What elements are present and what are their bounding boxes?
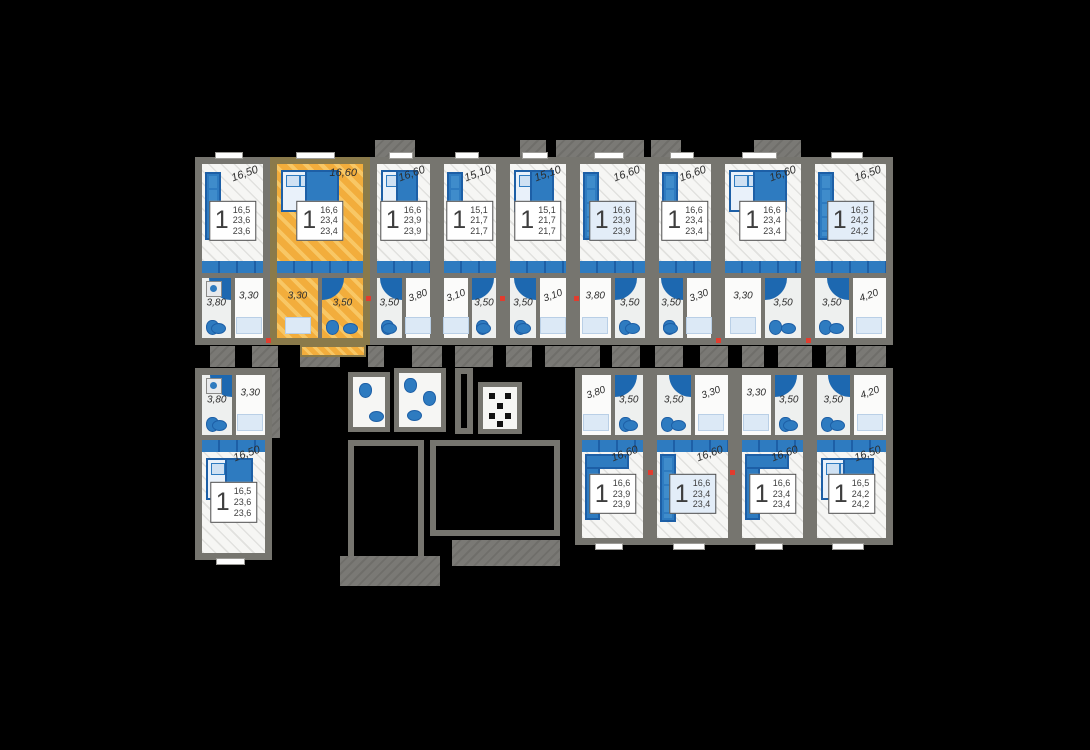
unit-area-overall: 23,9 bbox=[404, 226, 422, 237]
unit-area-overall: 23,4 bbox=[763, 226, 781, 237]
unit-area-overall: 21,7 bbox=[470, 226, 488, 237]
sink-icon bbox=[407, 410, 422, 421]
window bbox=[831, 152, 864, 159]
corridor-wall-segment bbox=[700, 346, 728, 367]
living-room: 16,60116,623,423,4 bbox=[659, 164, 711, 273]
entrance-mat bbox=[285, 317, 311, 334]
bathroom: 3,50 bbox=[615, 375, 644, 435]
living-room: 16,60116,623,423,4 bbox=[657, 440, 728, 538]
unit-info-card: 116,524,224,2 bbox=[827, 200, 874, 240]
bathroom-area-label: 3,50 bbox=[822, 298, 841, 309]
window bbox=[594, 152, 624, 159]
wc-room bbox=[394, 368, 446, 432]
hallway: 3,80 bbox=[580, 278, 615, 338]
sink-icon bbox=[211, 323, 226, 334]
unit-area-total: 24,2 bbox=[852, 488, 870, 499]
wet-zone: 3,803,50 bbox=[580, 273, 645, 338]
unit-area-overall: 23,9 bbox=[613, 499, 631, 510]
unit-area-overall: 24,2 bbox=[852, 499, 870, 510]
bathroom: 3,50 bbox=[659, 278, 687, 338]
wet-zone: 3,103,50 bbox=[444, 273, 496, 338]
apartment-unit[interactable]: 16,50116,524,224,23,504,20 bbox=[810, 368, 893, 545]
sink-icon bbox=[625, 323, 640, 334]
sink-icon bbox=[781, 323, 796, 334]
corridor-wall-segment bbox=[506, 346, 532, 367]
toilet-icon bbox=[359, 383, 372, 398]
unit-info-card: 116,523,623,6 bbox=[210, 482, 257, 522]
unit-area-overall: 24,2 bbox=[851, 226, 869, 237]
washing-machine-icon bbox=[206, 378, 222, 394]
wet-zone: 3,303,50 bbox=[742, 375, 803, 440]
entrance-mat bbox=[686, 317, 712, 334]
unit-areas: 16,623,423,4 bbox=[693, 478, 711, 510]
unit-area-room: 16,5 bbox=[234, 486, 252, 497]
living-room: 16,60116,623,423,4 bbox=[742, 440, 803, 538]
unit-rooms-count: 1 bbox=[834, 481, 848, 506]
unit-area-overall: 23,4 bbox=[320, 226, 338, 237]
bathroom-area-label: 3,80 bbox=[207, 298, 226, 309]
unit-areas: 16,523,623,6 bbox=[234, 486, 252, 518]
entrance-mat bbox=[443, 317, 469, 334]
window bbox=[522, 152, 548, 159]
unit-info-card: 116,623,923,9 bbox=[589, 200, 636, 240]
unit-rooms-count: 1 bbox=[675, 481, 689, 506]
hall-area-label: 4,20 bbox=[859, 385, 881, 402]
entrance-mat bbox=[743, 414, 769, 431]
sink-icon bbox=[516, 323, 531, 334]
window bbox=[216, 558, 245, 565]
door-swing-mark bbox=[500, 296, 505, 301]
unit-areas: 16,623,923,9 bbox=[404, 204, 422, 236]
sink-icon bbox=[830, 420, 845, 431]
bathroom: 3,50 bbox=[815, 278, 853, 338]
bathroom-area-label: 3,50 bbox=[661, 298, 680, 309]
unit-area-room: 16,6 bbox=[613, 204, 631, 215]
core-wall bbox=[340, 556, 440, 586]
unit-area-room: 16,6 bbox=[320, 204, 338, 215]
corridor-wall-segment bbox=[545, 346, 600, 367]
unit-area-room: 16,5 bbox=[852, 478, 870, 489]
corridor-wall-segment bbox=[778, 346, 812, 367]
unit-areas: 16,623,923,9 bbox=[613, 478, 631, 510]
sink-icon bbox=[783, 420, 798, 431]
bed-pillow bbox=[286, 175, 300, 187]
bathroom-area-label: 3,50 bbox=[824, 395, 843, 406]
sink-icon bbox=[382, 323, 397, 334]
vent-room bbox=[478, 382, 522, 434]
bathroom-area-label: 3,50 bbox=[664, 395, 683, 406]
wet-zone: 3,803,30 bbox=[202, 375, 265, 440]
sink-icon bbox=[343, 323, 358, 334]
sink-icon bbox=[663, 323, 678, 334]
entrance-mat bbox=[583, 414, 609, 431]
unit-rooms-count: 1 bbox=[667, 208, 681, 233]
hallway: 4,20 bbox=[854, 375, 887, 435]
bathroom: 3,50 bbox=[817, 375, 854, 435]
shower-icon bbox=[322, 278, 344, 300]
vent-dot bbox=[489, 393, 495, 399]
wardrobe-strip bbox=[510, 261, 566, 273]
shower-icon bbox=[472, 278, 494, 300]
unit-info-card: 116,623,423,4 bbox=[749, 474, 796, 514]
hall-area-label: 3,80 bbox=[585, 385, 607, 402]
unit-area-total: 23,6 bbox=[234, 497, 252, 508]
vent-dot bbox=[497, 403, 503, 409]
unit-area-total: 23,4 bbox=[763, 215, 781, 226]
door-swing-mark bbox=[730, 470, 735, 475]
unit-rooms-count: 1 bbox=[216, 490, 230, 515]
hallway: 4,20 bbox=[853, 278, 887, 338]
door-swing-mark bbox=[806, 338, 811, 343]
unit-rooms-count: 1 bbox=[595, 208, 609, 233]
corridor-wall-segment bbox=[856, 346, 886, 367]
unit-area-total: 23,4 bbox=[693, 488, 711, 499]
sink-icon bbox=[671, 420, 686, 431]
bathroom: 3,50 bbox=[377, 278, 406, 338]
unit-rooms-count: 1 bbox=[755, 481, 769, 506]
hall-area-label: 3,30 bbox=[688, 288, 710, 305]
wardrobe-strip bbox=[202, 261, 263, 273]
living-room: 16,60116,623,923,9 bbox=[580, 164, 645, 273]
washing-machine-icon bbox=[206, 281, 222, 297]
apartment-unit[interactable]: 16,60116,623,423,43,503,30 bbox=[652, 157, 718, 345]
hallway: 3,10 bbox=[540, 278, 566, 338]
unit-area-overall: 21,7 bbox=[538, 226, 556, 237]
toilet-icon bbox=[423, 391, 436, 406]
hall-area-label: 3,30 bbox=[700, 385, 722, 402]
window bbox=[455, 152, 479, 159]
room-area-label: 16,60 bbox=[612, 164, 642, 185]
unit-area-room: 16,6 bbox=[685, 204, 703, 215]
bathroom: 3,50 bbox=[510, 278, 540, 338]
corridor-wall-segment bbox=[210, 346, 235, 367]
hall-area-label: 3,30 bbox=[239, 291, 258, 302]
unit-area-room: 16,6 bbox=[613, 478, 631, 489]
living-room: 15,10115,121,721,7 bbox=[444, 164, 496, 273]
door-swing-mark bbox=[716, 338, 721, 343]
bathroom: 3,80 bbox=[202, 278, 235, 338]
bathroom-area-label: 3,50 bbox=[773, 298, 792, 309]
bathroom-area-label: 3,50 bbox=[474, 298, 493, 309]
room-area-label: 16,50 bbox=[230, 164, 260, 185]
entrance-mat bbox=[405, 317, 431, 334]
bathroom: 3,50 bbox=[775, 375, 804, 435]
shower-icon bbox=[615, 375, 637, 397]
entrance-mat bbox=[582, 317, 608, 334]
sink-icon bbox=[212, 420, 227, 431]
unit-areas: 16,623,423,4 bbox=[763, 204, 781, 236]
wc-room bbox=[348, 372, 390, 432]
unit-area-total: 23,4 bbox=[773, 488, 791, 499]
wet-zone: 3,504,20 bbox=[817, 375, 886, 440]
entrance-mat bbox=[857, 414, 883, 431]
living-room: 16,50116,523,623,6 bbox=[202, 440, 265, 553]
window bbox=[215, 152, 243, 159]
wardrobe-strip bbox=[277, 261, 363, 273]
unit-area-total: 23,9 bbox=[613, 215, 631, 226]
hallway: 3,30 bbox=[695, 375, 729, 435]
window bbox=[755, 543, 783, 550]
shower-icon bbox=[615, 278, 637, 300]
apartment-unit[interactable]: 16,60116,623,423,43,503,30 bbox=[650, 368, 735, 545]
unit-area-overall: 23,4 bbox=[685, 226, 703, 237]
unit-area-room: 16,6 bbox=[773, 478, 791, 489]
balcony-highlight bbox=[300, 345, 366, 357]
sink-icon bbox=[369, 411, 384, 422]
unit-info-card: 116,623,923,9 bbox=[380, 200, 427, 240]
hall-area-label: 3,30 bbox=[733, 291, 752, 302]
room-area-label: 16,60 bbox=[329, 167, 357, 179]
room-area-label: 16,60 bbox=[678, 164, 708, 185]
window bbox=[296, 152, 336, 159]
living-room: 16,60116,623,423,4 bbox=[725, 164, 801, 273]
unit-areas: 16,623,923,9 bbox=[613, 204, 631, 236]
unit-rooms-count: 1 bbox=[833, 208, 847, 233]
bathroom: 3,50 bbox=[657, 375, 695, 435]
unit-info-card: 116,623,423,4 bbox=[661, 200, 708, 240]
unit-info-card: 115,121,721,7 bbox=[446, 200, 493, 240]
unit-info-card: 115,121,721,7 bbox=[514, 200, 561, 240]
unit-info-card: 116,523,623,6 bbox=[209, 200, 256, 240]
door-swing-mark bbox=[266, 338, 271, 343]
corridor-wall-segment bbox=[252, 346, 278, 367]
unit-rooms-count: 1 bbox=[745, 208, 759, 233]
bed-pillow bbox=[734, 175, 748, 187]
room-area-label: 16,50 bbox=[853, 164, 883, 185]
shower-icon bbox=[661, 278, 683, 300]
unit-areas: 16,524,224,2 bbox=[852, 478, 870, 510]
unit-area-overall: 23,4 bbox=[773, 499, 791, 510]
window bbox=[670, 152, 694, 159]
unit-area-total: 21,7 bbox=[538, 215, 556, 226]
core-wall bbox=[272, 368, 280, 438]
sink-icon bbox=[829, 323, 844, 334]
bathroom-area-label: 3,50 bbox=[779, 395, 798, 406]
unit-area-room: 16,5 bbox=[233, 204, 251, 215]
bathroom: 3,80 bbox=[202, 375, 236, 435]
bathroom-area-label: 3,50 bbox=[380, 298, 399, 309]
unit-area-total: 24,2 bbox=[851, 215, 869, 226]
vent-dot bbox=[505, 413, 511, 419]
entrance-mat bbox=[856, 317, 882, 334]
wet-zone: 3,803,30 bbox=[202, 273, 263, 338]
hallway: 3,80 bbox=[406, 278, 431, 338]
living-room: 16,50116,524,224,2 bbox=[815, 164, 886, 273]
hallway: 3,30 bbox=[725, 278, 765, 338]
wardrobe-strip bbox=[659, 261, 711, 273]
unit-area-room: 16,6 bbox=[693, 478, 711, 489]
wet-zone: 3,503,30 bbox=[657, 375, 728, 440]
vent-dot bbox=[497, 421, 503, 427]
unit-areas: 15,121,721,7 bbox=[470, 204, 488, 236]
bathroom-area-label: 3,50 bbox=[513, 298, 532, 309]
corridor-wall-segment bbox=[742, 346, 764, 367]
bathroom: 3,50 bbox=[765, 278, 801, 338]
entrance-mat bbox=[540, 317, 566, 334]
stair-core bbox=[348, 440, 424, 562]
living-room: 16,60116,623,423,4 bbox=[277, 164, 363, 273]
living-room: 16,50116,524,224,2 bbox=[817, 440, 886, 538]
unit-area-total: 23,9 bbox=[613, 488, 631, 499]
apartment-unit[interactable]: 16,50116,524,224,23,504,20 bbox=[808, 157, 893, 345]
wardrobe-strip bbox=[580, 261, 645, 273]
unit-area-room: 16,6 bbox=[763, 204, 781, 215]
shower-icon bbox=[380, 278, 402, 300]
window bbox=[595, 543, 623, 550]
entrance-mat bbox=[237, 414, 263, 431]
unit-info-card: 116,623,423,4 bbox=[739, 200, 786, 240]
wardrobe-strip bbox=[377, 261, 430, 273]
unit-info-card: 116,623,923,9 bbox=[589, 474, 636, 514]
apartment-unit[interactable]: 16,60116,623,923,93,803,50 bbox=[575, 368, 650, 545]
hall-area-label: 3,10 bbox=[542, 288, 564, 305]
bathroom-area-label: 3,50 bbox=[620, 298, 639, 309]
entrance-mat bbox=[236, 317, 262, 334]
hall-area-label: 3,30 bbox=[288, 291, 307, 302]
window bbox=[742, 152, 777, 159]
corridor-wall-segment bbox=[826, 346, 846, 367]
hallway: 3,30 bbox=[742, 375, 775, 435]
shower-icon bbox=[828, 375, 850, 397]
bed-pillow bbox=[211, 463, 225, 475]
wet-zone: 3,803,50 bbox=[582, 375, 643, 440]
hallway: 3,30 bbox=[236, 375, 266, 435]
wardrobe-strip bbox=[444, 261, 496, 273]
unit-areas: 16,623,423,4 bbox=[773, 478, 791, 510]
unit-info-card: 116,623,423,4 bbox=[296, 200, 343, 240]
living-room: 15,10115,121,721,7 bbox=[510, 164, 566, 273]
hall-area-label: 3,80 bbox=[586, 291, 605, 302]
unit-areas: 16,623,423,4 bbox=[685, 204, 703, 236]
unit-area-room: 15,1 bbox=[470, 204, 488, 215]
vent-dot bbox=[505, 393, 511, 399]
unit-info-card: 116,623,423,4 bbox=[669, 474, 716, 514]
corridor-wall-segment bbox=[655, 346, 683, 367]
hallway: 3,30 bbox=[235, 278, 264, 338]
unit-area-overall: 23,6 bbox=[233, 226, 251, 237]
wet-zone: 3,504,20 bbox=[815, 273, 886, 338]
corridor-wall-segment bbox=[455, 346, 493, 367]
apartment-unit[interactable]: 16,50116,523,623,63,803,30 bbox=[195, 157, 270, 345]
hall-area-label: 4,20 bbox=[858, 288, 880, 305]
shower-icon bbox=[514, 278, 536, 300]
unit-areas: 16,623,423,4 bbox=[320, 204, 338, 236]
bathroom-area-label: 3,80 bbox=[207, 395, 226, 406]
bathroom: 3,50 bbox=[472, 278, 496, 338]
wet-zone: 3,303,50 bbox=[725, 273, 801, 338]
corridor-wall-segment bbox=[368, 346, 384, 367]
unit-area-total: 23,4 bbox=[685, 215, 703, 226]
apartment-unit-selected[interactable]: 16,60116,623,423,43,303,50 bbox=[270, 157, 370, 345]
unit-info-card: 116,524,224,2 bbox=[828, 474, 875, 514]
wet-zone: 3,503,30 bbox=[659, 273, 711, 338]
window bbox=[832, 543, 864, 550]
toilet-icon bbox=[404, 378, 417, 393]
hall-area-label: 3,30 bbox=[747, 388, 766, 399]
apartment-unit[interactable]: 16,60116,623,423,43,303,50 bbox=[735, 368, 810, 545]
hallway: 3,10 bbox=[444, 278, 472, 338]
unit-rooms-count: 1 bbox=[595, 481, 609, 506]
unit-area-overall: 23,4 bbox=[693, 499, 711, 510]
unit-areas: 15,121,721,7 bbox=[538, 204, 556, 236]
elevator-shaft bbox=[430, 440, 560, 536]
room-area-label: 15,10 bbox=[463, 164, 493, 185]
bathroom: 3,50 bbox=[615, 278, 646, 338]
shower-icon bbox=[775, 375, 797, 397]
shower-icon bbox=[827, 278, 849, 300]
unit-area-total: 23,9 bbox=[404, 215, 422, 226]
unit-rooms-count: 1 bbox=[520, 208, 534, 233]
living-room: 16,60116,623,923,9 bbox=[377, 164, 430, 273]
hallway: 3,30 bbox=[277, 278, 322, 338]
wardrobe-strip bbox=[815, 261, 886, 273]
sink-icon bbox=[476, 323, 491, 334]
floor-plan: 16,50116,523,623,63,803,3016,60116,623,4… bbox=[0, 0, 1090, 750]
unit-area-room: 16,5 bbox=[851, 204, 869, 215]
apartment-unit[interactable]: 16,60116,623,423,43,303,50 bbox=[718, 157, 808, 345]
unit-area-room: 15,1 bbox=[538, 204, 556, 215]
apartment-unit[interactable]: 15,10115,121,721,73,503,10 bbox=[503, 157, 573, 345]
vent-dot bbox=[489, 413, 495, 419]
shower-icon bbox=[765, 278, 787, 300]
corridor-wall-segment bbox=[612, 346, 640, 367]
apartment-unit[interactable]: 15,10115,121,721,73,103,50 bbox=[437, 157, 503, 345]
unit-area-total: 23,4 bbox=[320, 215, 338, 226]
unit-rooms-count: 1 bbox=[452, 208, 466, 233]
hallway: 3,30 bbox=[687, 278, 711, 338]
hall-area-label: 3,30 bbox=[241, 388, 260, 399]
unit-area-overall: 23,6 bbox=[234, 508, 252, 519]
shower-icon bbox=[669, 375, 691, 397]
living-room: 16,60116,623,923,9 bbox=[582, 440, 643, 538]
sink-icon bbox=[623, 420, 638, 431]
apartment-unit[interactable]: 16,50116,523,623,63,803,30 bbox=[195, 368, 272, 560]
unit-rooms-count: 1 bbox=[302, 208, 316, 233]
bathroom-area-label: 3,50 bbox=[333, 298, 352, 309]
wardrobe-strip bbox=[725, 261, 801, 273]
unit-areas: 16,524,224,2 bbox=[851, 204, 869, 236]
entrance-mat bbox=[730, 317, 756, 334]
unit-rooms-count: 1 bbox=[386, 208, 400, 233]
apartment-unit[interactable]: 16,60116,623,923,93,803,50 bbox=[573, 157, 652, 345]
hallway: 3,80 bbox=[582, 375, 615, 435]
core-wall bbox=[452, 540, 560, 566]
hall-area-label: 3,80 bbox=[407, 288, 429, 305]
hall-area-label: 3,10 bbox=[445, 288, 467, 305]
unit-rooms-count: 1 bbox=[215, 208, 229, 233]
unit-area-overall: 23,9 bbox=[613, 226, 631, 237]
toilet-icon bbox=[326, 320, 339, 335]
unit-area-room: 16,6 bbox=[404, 204, 422, 215]
utility-shaft bbox=[455, 368, 473, 434]
corridor-wall-segment bbox=[412, 346, 442, 367]
wet-zone: 3,503,10 bbox=[510, 273, 566, 338]
wet-zone: 3,303,50 bbox=[277, 273, 363, 338]
living-room: 16,50116,523,623,6 bbox=[202, 164, 263, 273]
wet-zone: 3,503,80 bbox=[377, 273, 430, 338]
unit-area-total: 23,6 bbox=[233, 215, 251, 226]
bathroom: 3,50 bbox=[322, 278, 363, 338]
door-swing-mark bbox=[366, 296, 371, 301]
unit-areas: 16,523,623,6 bbox=[233, 204, 251, 236]
window bbox=[389, 152, 413, 159]
door-swing-mark bbox=[648, 470, 653, 475]
door-swing-mark bbox=[574, 296, 579, 301]
apartment-unit[interactable]: 16,60116,623,923,93,503,80 bbox=[370, 157, 437, 345]
entrance-mat bbox=[698, 414, 724, 431]
bathroom-area-label: 3,50 bbox=[619, 395, 638, 406]
unit-area-total: 21,7 bbox=[470, 215, 488, 226]
